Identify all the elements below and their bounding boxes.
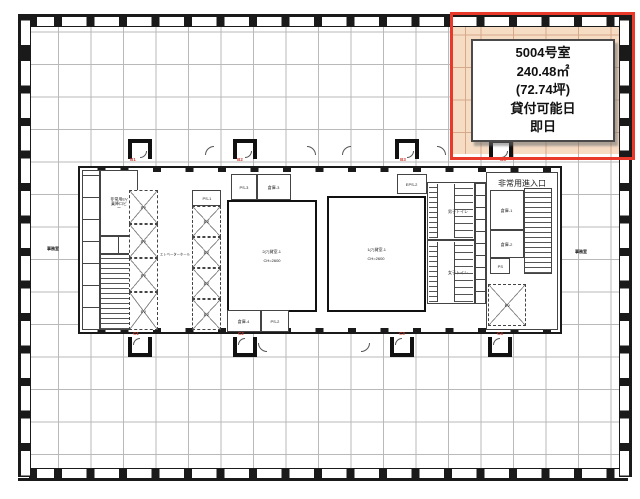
ps-label: PS (497, 264, 502, 269)
door-arc (133, 338, 147, 352)
elevator-label: EV (504, 303, 509, 308)
elevator-label: EV (204, 250, 209, 255)
elevator-label: EV (141, 309, 146, 314)
storage1-label: 倉庫-1 (501, 208, 513, 213)
pipe-shaft-ps2: PS-2 (261, 310, 289, 332)
axis-label: C2 (232, 332, 250, 336)
emergency-elevator-lobby-label: 非常用EV乗降ロビー (110, 196, 128, 210)
entry-door[interactable] (390, 337, 414, 357)
elevator-shaft: EV (192, 237, 221, 268)
elevator-label: EV (141, 273, 146, 278)
unit-availability-value: 即日 (530, 118, 556, 137)
unit-availability-label: 貸付可能日 (510, 100, 575, 119)
storage-4: 倉庫-4 (227, 310, 261, 332)
core-room2-label: 1(7)貸室-1 (367, 247, 386, 252)
core-room2-ch: CH=2600 (368, 256, 385, 261)
door-arc (395, 338, 409, 352)
emergency-entry-label: 非常用進入口 (498, 179, 546, 188)
elevator-shaft: EV (192, 299, 221, 330)
floorplan-canvas: 事務室 事務室 非常用EV乗降ロビー EV EV EV EV エレベーターホール… (0, 0, 640, 499)
elevator-shaft: EV (192, 206, 221, 237)
unit-info-card[interactable]: 5004号室 240.48㎡ (72.74坪) 貸付可能日 即日 (471, 39, 615, 142)
womens-toilet: 女子トイレ (427, 240, 475, 304)
storage-1: 倉庫-1 (490, 190, 524, 230)
unit-area-tsubo: (72.74坪) (516, 81, 570, 100)
entry-door[interactable] (488, 337, 512, 357)
elevator-shaft: EV (129, 258, 158, 292)
pipe-shaft-strip (475, 182, 486, 304)
outer-wall-bottom (18, 468, 628, 481)
electrical-pipe-shaft-eps2: EPS-2 (397, 174, 427, 194)
axis-label: B3 (394, 158, 412, 162)
ps2-label: PS-2 (271, 319, 280, 324)
unit-room-number: 5004号室 (516, 44, 571, 63)
core-room1-ch: CH=2600 (263, 258, 280, 263)
elevator-label: EV (141, 239, 146, 244)
outer-wall-left (18, 14, 31, 477)
core-room-2: 1(7)貸室-1 CH=2600 (327, 196, 426, 312)
axis-label: C4 (491, 332, 509, 336)
entry-door[interactable] (233, 139, 257, 159)
toilet-fixtures (429, 184, 438, 238)
elevator-shaft: EV (129, 190, 158, 224)
core-room1-label: 2(7)貸室-1 (263, 249, 282, 254)
staircase-east (524, 188, 552, 274)
toilet-fixtures (429, 242, 438, 302)
elevator-label: EV (204, 219, 209, 224)
entry-door[interactable] (233, 337, 257, 357)
elevator-hall-label: エレベーターホール (160, 252, 190, 256)
toilet-stalls (454, 184, 473, 238)
office-area-label-left: 事務室 (45, 246, 62, 252)
dimension-ticks-left (8, 14, 17, 477)
toilet-stalls (454, 242, 473, 302)
mens-toilet: 男子トイレ (427, 182, 475, 240)
core-room-1: 2(7)貸室-1 CH=2600 (227, 200, 317, 312)
ps3-label: PS-3 (240, 185, 249, 190)
dimension-ticks-bottom (18, 481, 628, 490)
elevator-shaft: EV (129, 224, 158, 258)
door-arc (133, 144, 147, 158)
elevator-label: EV (204, 281, 209, 286)
unit-area-m2: 240.48㎡ (517, 63, 570, 82)
pipe-shaft-ps3: PS-3 (231, 174, 257, 200)
entry-door[interactable] (128, 337, 152, 357)
door-arc (238, 144, 252, 158)
storage4-label: 倉庫-4 (238, 319, 250, 324)
elevator-label: EV (141, 205, 146, 210)
entry-door[interactable] (128, 139, 152, 159)
office-area-label-right: 事務室 (573, 249, 590, 255)
elevator-label: EV (204, 312, 209, 317)
elevator-shaft: EV (192, 268, 221, 299)
axis-label: B1 (124, 158, 142, 162)
eps2-label: EPS-2 (406, 182, 418, 187)
elevator-shaft: EV (488, 284, 526, 326)
axis-label: C1 (127, 332, 145, 336)
storage-2: 倉庫-2 (490, 230, 524, 258)
storage2-label: 倉庫-2 (501, 242, 513, 247)
ps1-label: PS-1 (202, 196, 211, 201)
door-arc (238, 338, 252, 352)
service-shaft-cells (82, 170, 100, 330)
pipe-shaft-ps1: PS-1 (192, 190, 221, 206)
axis-label: B2 (231, 158, 249, 162)
entry-door[interactable] (395, 139, 419, 159)
elevator-hall: エレベーターホール (158, 248, 192, 260)
storage3-label: 倉庫-3 (268, 185, 280, 190)
building-core: 非常用EV乗降ロビー EV EV EV EV エレベーターホール PS-1 EV… (78, 166, 562, 334)
door-arc (493, 338, 507, 352)
storage-3: 倉庫-3 (257, 174, 291, 200)
door-arc (400, 144, 414, 158)
elevator-shaft: EV (129, 292, 158, 330)
pipe-shaft-ps: PS (490, 258, 510, 274)
axis-label: C3 (393, 332, 411, 336)
